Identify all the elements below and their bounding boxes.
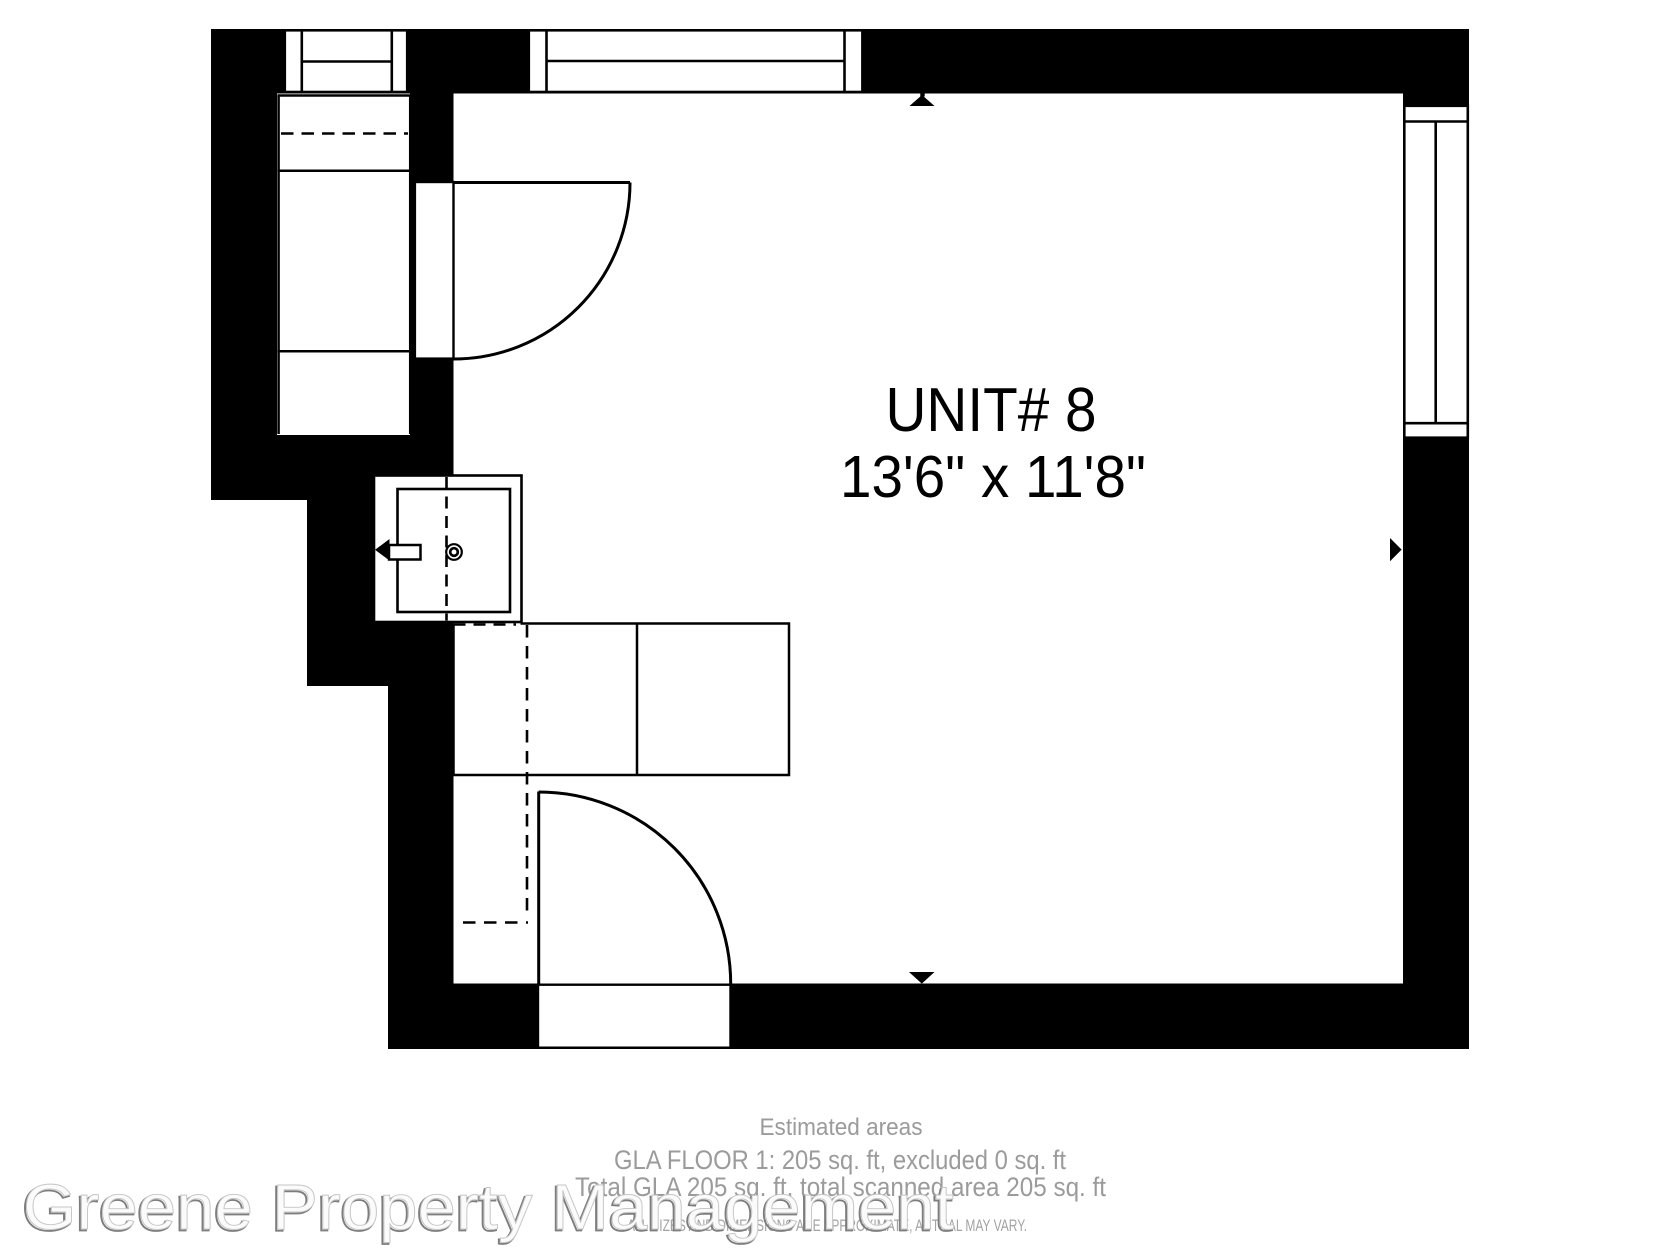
svg-text:Estimated areas: Estimated areas xyxy=(760,1114,923,1141)
svg-text:13'6" x 11'8": 13'6" x 11'8" xyxy=(840,443,1146,510)
svg-text:Greene Property Management: Greene Property Management xyxy=(23,1171,954,1243)
svg-text:UNIT# 8: UNIT# 8 xyxy=(886,376,1097,445)
